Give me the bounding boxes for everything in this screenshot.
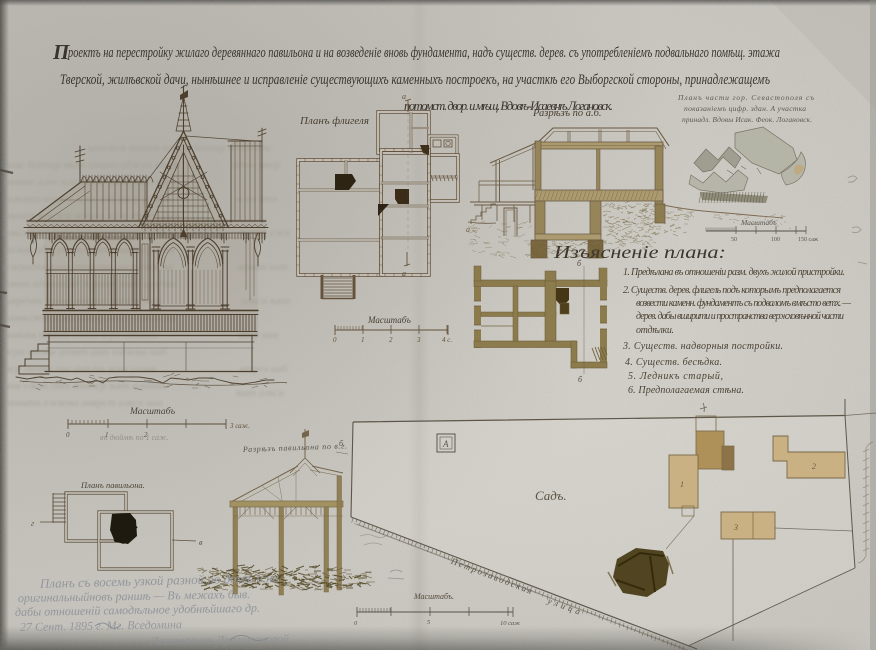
svg-text:3. Существ. надворныя постройк: 3. Существ. надворныя постройки. bbox=[622, 341, 783, 352]
svg-text:принадл. Вдовы Исак. Феок. Лог: принадл. Вдовы Исак. Феок. Логановск. bbox=[682, 115, 812, 124]
svg-text:6. Предполагаемая стѣна.: 6. Предполагаемая стѣна. bbox=[628, 385, 744, 396]
svg-text:П: П bbox=[52, 40, 70, 64]
svg-text:Масштабъ.: Масштабъ. bbox=[413, 592, 454, 601]
svg-text:1: 1 bbox=[361, 336, 365, 344]
svg-text:въ дюймѣ по 1 саж.: въ дюймѣ по 1 саж. bbox=[100, 433, 168, 442]
svg-text:А: А bbox=[442, 439, 449, 449]
svg-text:возвести каменн. фундаментъ съ: возвести каменн. фундаментъ съ подваломъ… bbox=[636, 298, 851, 309]
svg-text:ѣвт олксн: ѣвт олксн bbox=[236, 387, 284, 399]
svg-text:дерев. дабы вширити и простран: дерев. дабы вширити и пространства вержх… bbox=[636, 311, 844, 322]
svg-text:3 саж.: 3 саж. bbox=[229, 422, 250, 430]
svg-text:вср ончвт евн анѣтн вена уланв: вср ончвт евн анѣтн вена уланв bbox=[6, 363, 157, 375]
svg-text:роектъ на перестройку жилаго д: роектъ на перестройку жилаго деревяннаго… bbox=[67, 45, 780, 61]
svg-text:4. Существ. бесѣдка.: 4. Существ. бесѣдка. bbox=[625, 357, 722, 368]
svg-text:а: а bbox=[466, 225, 470, 234]
svg-text:Садъ.: Садъ. bbox=[535, 488, 567, 503]
svg-text:Масштабъ: Масштабъ bbox=[367, 315, 411, 325]
svg-text:1: 1 bbox=[680, 480, 684, 489]
svg-text:1. Предѣлана въ отношеніи разм: 1. Предѣлана въ отношеніи разм. двухъ жи… bbox=[623, 267, 845, 278]
svg-text:Масштабъ: Масштабъ bbox=[740, 218, 777, 227]
svg-text:10 саж: 10 саж bbox=[500, 620, 520, 627]
svg-text:Лешановичъ Драгомановой: Лешановичъ Драгомановой bbox=[149, 632, 289, 648]
svg-text:а: а bbox=[402, 92, 406, 101]
svg-text:5. Ледникъ старый,: 5. Ледникъ старый, bbox=[628, 371, 723, 382]
svg-text:27 Сент. 1895 г. Мг. Всед: 27 Сент. 1895 г. Мг. Вседомина bbox=[20, 617, 182, 634]
svg-text:Планъ части гор. Севастополя с: Планъ части гор. Севастополя съ bbox=[677, 93, 814, 102]
svg-text:50: 50 bbox=[731, 237, 737, 243]
svg-text:3: 3 bbox=[733, 523, 738, 532]
svg-text:4 с.: 4 с. bbox=[442, 336, 452, 344]
svg-text:Тверской, жилѣвской дачи, нынѣ: Тверской, жилѣвской дачи, нынѣшнее и исп… bbox=[60, 72, 770, 88]
svg-text:втреч наб: втреч наб bbox=[240, 363, 288, 375]
svg-text:2: 2 bbox=[389, 336, 393, 344]
svg-text:б.: б. bbox=[339, 439, 345, 448]
svg-text:Изъясненіе плана:: Изъясненіе плана: bbox=[553, 242, 726, 262]
svg-text:0: 0 bbox=[66, 431, 70, 439]
svg-text:а: а bbox=[402, 269, 406, 278]
svg-text:100: 100 bbox=[771, 237, 780, 243]
svg-text:2: 2 bbox=[812, 462, 816, 471]
svg-text:0: 0 bbox=[333, 336, 337, 344]
svg-text:Планъ флигеля: Планъ флигеля bbox=[299, 115, 369, 127]
svg-text:влкс ботшр вѣпв имано аджуч ол: влкс ботшр вѣпв имано аджуч олксн bbox=[6, 159, 180, 171]
svg-text:показаніемъ цифр. здан. А учас: показаніемъ цифр. здан. А участка bbox=[684, 104, 806, 113]
svg-text:в.: в. bbox=[339, 574, 344, 583]
svg-text:отдѣлки.: отдѣлки. bbox=[636, 325, 674, 336]
svg-text:Планъ павильона.: Планъ павильона. bbox=[80, 480, 145, 490]
svg-text:2. Существ. дерев. флигель под: 2. Существ. дерев. флигель подъ которымъ… bbox=[623, 285, 841, 296]
svg-text:Масштабъ: Масштабъ bbox=[129, 406, 175, 417]
svg-text:в: в bbox=[199, 538, 203, 547]
svg-text:3: 3 bbox=[416, 336, 421, 344]
svg-text:г: г bbox=[31, 519, 34, 528]
svg-text:Разрѣзъ по а.б.: Разрѣзъ по а.б. bbox=[532, 108, 602, 119]
svg-text:150 саж: 150 саж bbox=[798, 237, 819, 243]
